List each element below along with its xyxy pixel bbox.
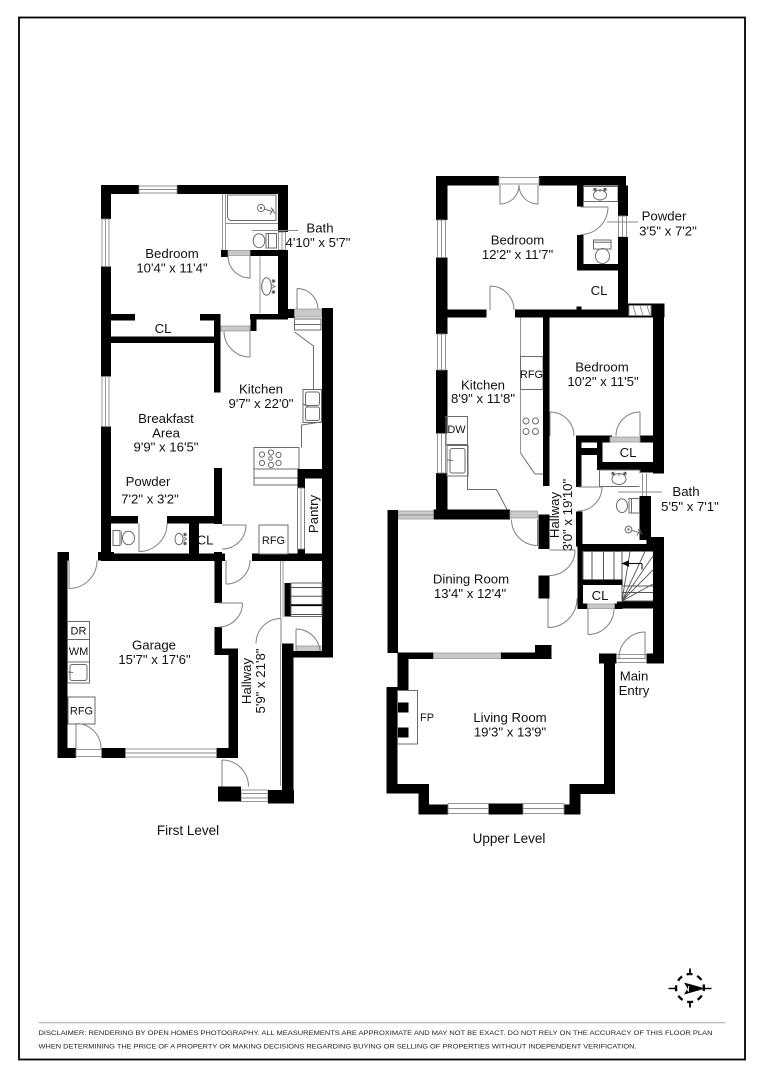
svg-text:CL: CL [197, 533, 214, 548]
svg-text:Dining Room: Dining Room [433, 572, 509, 587]
svg-text:DISCLAIMER: RENDERING BY OPEN: DISCLAIMER: RENDERING BY OPEN HOMES PHOT… [39, 1030, 713, 1037]
svg-text:WM: WM [69, 646, 89, 658]
svg-text:CL: CL [591, 283, 608, 298]
svg-text:WHEN DETERMINING THE PRICE OF: WHEN DETERMINING THE PRICE OF A PROPERTY… [39, 1044, 637, 1051]
svg-text:RFG: RFG [520, 369, 543, 381]
svg-text:RFG: RFG [70, 706, 93, 718]
svg-text:3'5" x 7'2": 3'5" x 7'2" [639, 224, 697, 239]
svg-text:Hallway: Hallway [239, 658, 254, 705]
svg-text:9'7" x 22'0": 9'7" x 22'0" [229, 396, 294, 411]
svg-text:FP: FP [420, 712, 434, 724]
svg-text:Entry: Entry [619, 683, 650, 698]
svg-text:Breakfast: Breakfast [138, 411, 194, 426]
svg-text:Bedroom: Bedroom [145, 246, 199, 261]
svg-text:Powder: Powder [642, 209, 687, 224]
svg-text:5'9" x 21'8": 5'9" x 21'8" [253, 648, 268, 713]
svg-text:DR: DR [71, 626, 87, 638]
svg-text:19'3" x 13'9": 19'3" x 13'9" [474, 725, 547, 740]
svg-text:Bath: Bath [672, 484, 699, 499]
svg-text:Powder: Powder [126, 474, 171, 489]
svg-text:Bedroom: Bedroom [491, 233, 545, 248]
svg-text:CL: CL [592, 588, 609, 603]
svg-text:Bath: Bath [306, 221, 333, 236]
svg-text:CL: CL [620, 445, 637, 460]
svg-text:5'5" x 7'1": 5'5" x 7'1" [661, 499, 719, 514]
svg-text:First Level: First Level [157, 823, 219, 838]
svg-text:7'2" x 3'2": 7'2" x 3'2" [121, 492, 179, 507]
svg-text:CL: CL [155, 321, 172, 336]
svg-text:12'2" x 11'7": 12'2" x 11'7" [482, 247, 554, 262]
svg-text:Pantry: Pantry [306, 495, 321, 534]
svg-text:Bedroom: Bedroom [575, 360, 629, 375]
svg-text:DW: DW [447, 424, 466, 436]
svg-text:Garage: Garage [132, 638, 176, 653]
svg-text:Upper Level: Upper Level [473, 831, 546, 846]
svg-text:Kitchen: Kitchen [239, 382, 283, 397]
svg-text:10'2" x 11'5": 10'2" x 11'5" [567, 374, 639, 389]
svg-text:RFG: RFG [262, 535, 285, 547]
svg-text:15'7" x 17'6": 15'7" x 17'6" [118, 652, 191, 667]
svg-text:Main: Main [620, 669, 649, 684]
svg-text:10'4" x 11'4": 10'4" x 11'4" [136, 261, 208, 276]
svg-text:3'0" x 19'10": 3'0" x 19'10" [560, 479, 575, 552]
svg-text:8'9" x 11'8": 8'9" x 11'8" [451, 391, 515, 406]
svg-text:4'10" x 5'7": 4'10" x 5'7" [286, 235, 351, 250]
svg-text:9'9" x 16'5": 9'9" x 16'5" [134, 440, 199, 455]
svg-text:Living Room: Living Room [473, 710, 546, 725]
svg-text:13'4" x 12'4": 13'4" x 12'4" [434, 586, 507, 601]
svg-text:Area: Area [152, 426, 181, 441]
